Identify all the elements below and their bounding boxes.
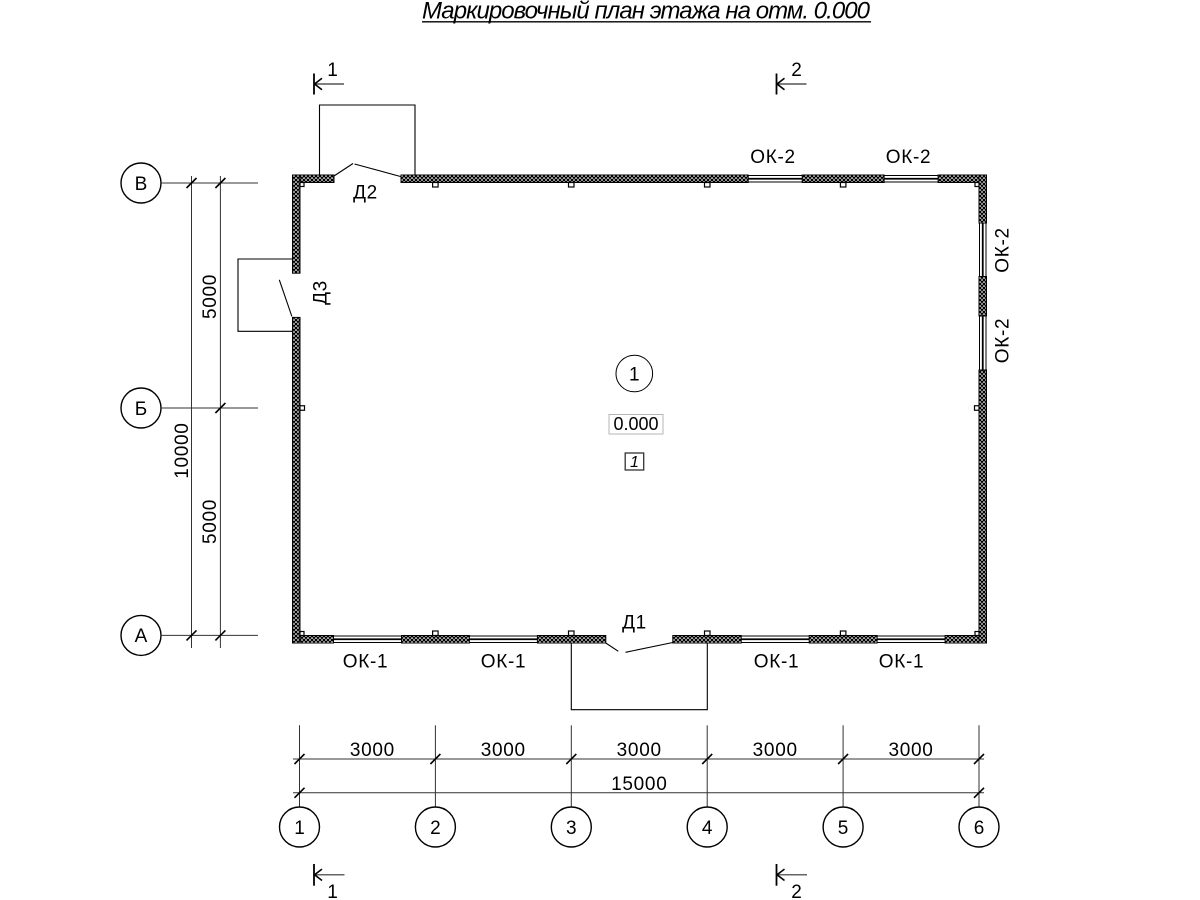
svg-text:10000: 10000 (172, 422, 193, 478)
svg-text:Б: Б (135, 399, 147, 420)
svg-text:ОК-2: ОК-2 (886, 147, 932, 168)
svg-text:ОК-1: ОК-1 (879, 652, 925, 673)
svg-text:15000: 15000 (611, 774, 667, 795)
svg-text:3000: 3000 (350, 740, 395, 761)
svg-text:ОК-1: ОК-1 (343, 652, 389, 673)
svg-text:5000: 5000 (200, 499, 221, 544)
svg-text:2: 2 (791, 882, 802, 900)
svg-text:ОК-1: ОК-1 (754, 652, 800, 673)
svg-text:1: 1 (629, 364, 640, 385)
svg-text:1: 1 (630, 454, 639, 471)
svg-text:5000: 5000 (200, 274, 221, 319)
svg-text:4: 4 (702, 818, 713, 839)
svg-text:ОК-2: ОК-2 (993, 318, 1014, 364)
svg-text:Д1: Д1 (622, 613, 647, 634)
svg-text:3000: 3000 (617, 740, 662, 761)
svg-text:3000: 3000 (481, 740, 526, 761)
svg-text:3000: 3000 (888, 740, 933, 761)
svg-text:ОК-2: ОК-2 (993, 227, 1014, 273)
svg-text:6: 6 (974, 818, 985, 839)
svg-text:Д2: Д2 (353, 183, 378, 204)
svg-text:ОК-2: ОК-2 (750, 147, 796, 168)
svg-text:2: 2 (430, 818, 441, 839)
svg-text:3: 3 (566, 818, 577, 839)
svg-text:1: 1 (327, 882, 338, 900)
svg-text:А: А (135, 626, 148, 647)
svg-text:5: 5 (838, 818, 849, 839)
svg-text:2: 2 (791, 60, 802, 81)
svg-text:ОК-1: ОК-1 (481, 652, 527, 673)
svg-text:1: 1 (294, 818, 305, 839)
svg-text:Маркировочный план этажа на от: Маркировочный план этажа на отм. 0.000 (422, 0, 871, 25)
svg-text:Д3: Д3 (311, 280, 332, 305)
svg-text:В: В (135, 174, 148, 195)
svg-text:1: 1 (327, 60, 338, 81)
svg-text:3000: 3000 (753, 740, 798, 761)
svg-text:0.000: 0.000 (613, 414, 658, 434)
